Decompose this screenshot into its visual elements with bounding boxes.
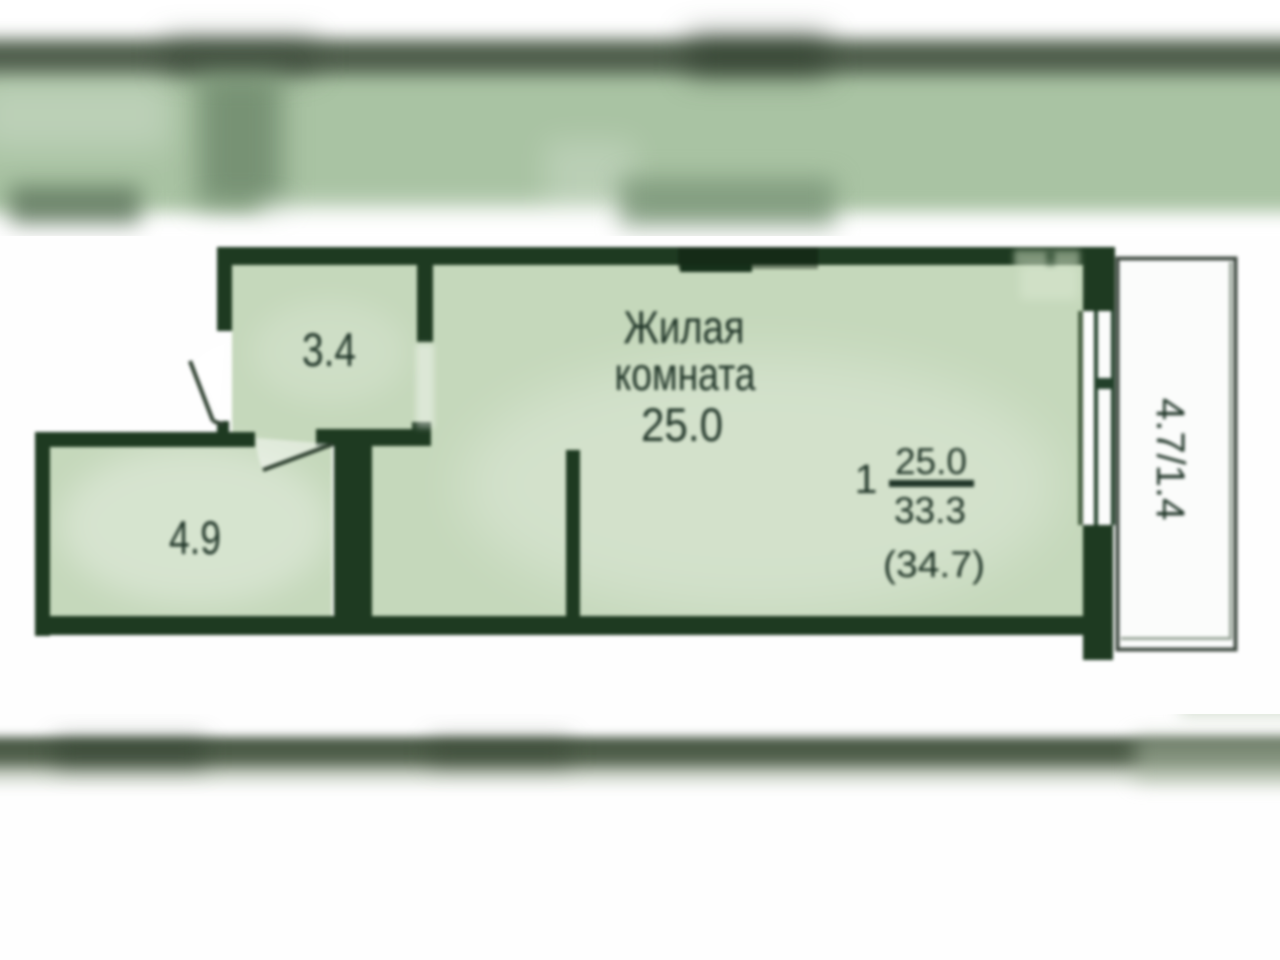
svg-text:25.0: 25.0 (641, 398, 723, 451)
svg-text:Жилая: Жилая (624, 301, 745, 353)
svg-text:4.9: 4.9 (169, 511, 221, 564)
svg-text:комната: комната (615, 348, 756, 400)
svg-text:33.3: 33.3 (894, 490, 966, 531)
svg-text:25.0: 25.0 (895, 441, 967, 482)
svg-text:1: 1 (855, 456, 878, 502)
svg-text:4.7/1.4: 4.7/1.4 (1148, 398, 1192, 520)
svg-text:(34.7): (34.7) (883, 544, 985, 585)
svg-text:3.4: 3.4 (302, 323, 356, 376)
